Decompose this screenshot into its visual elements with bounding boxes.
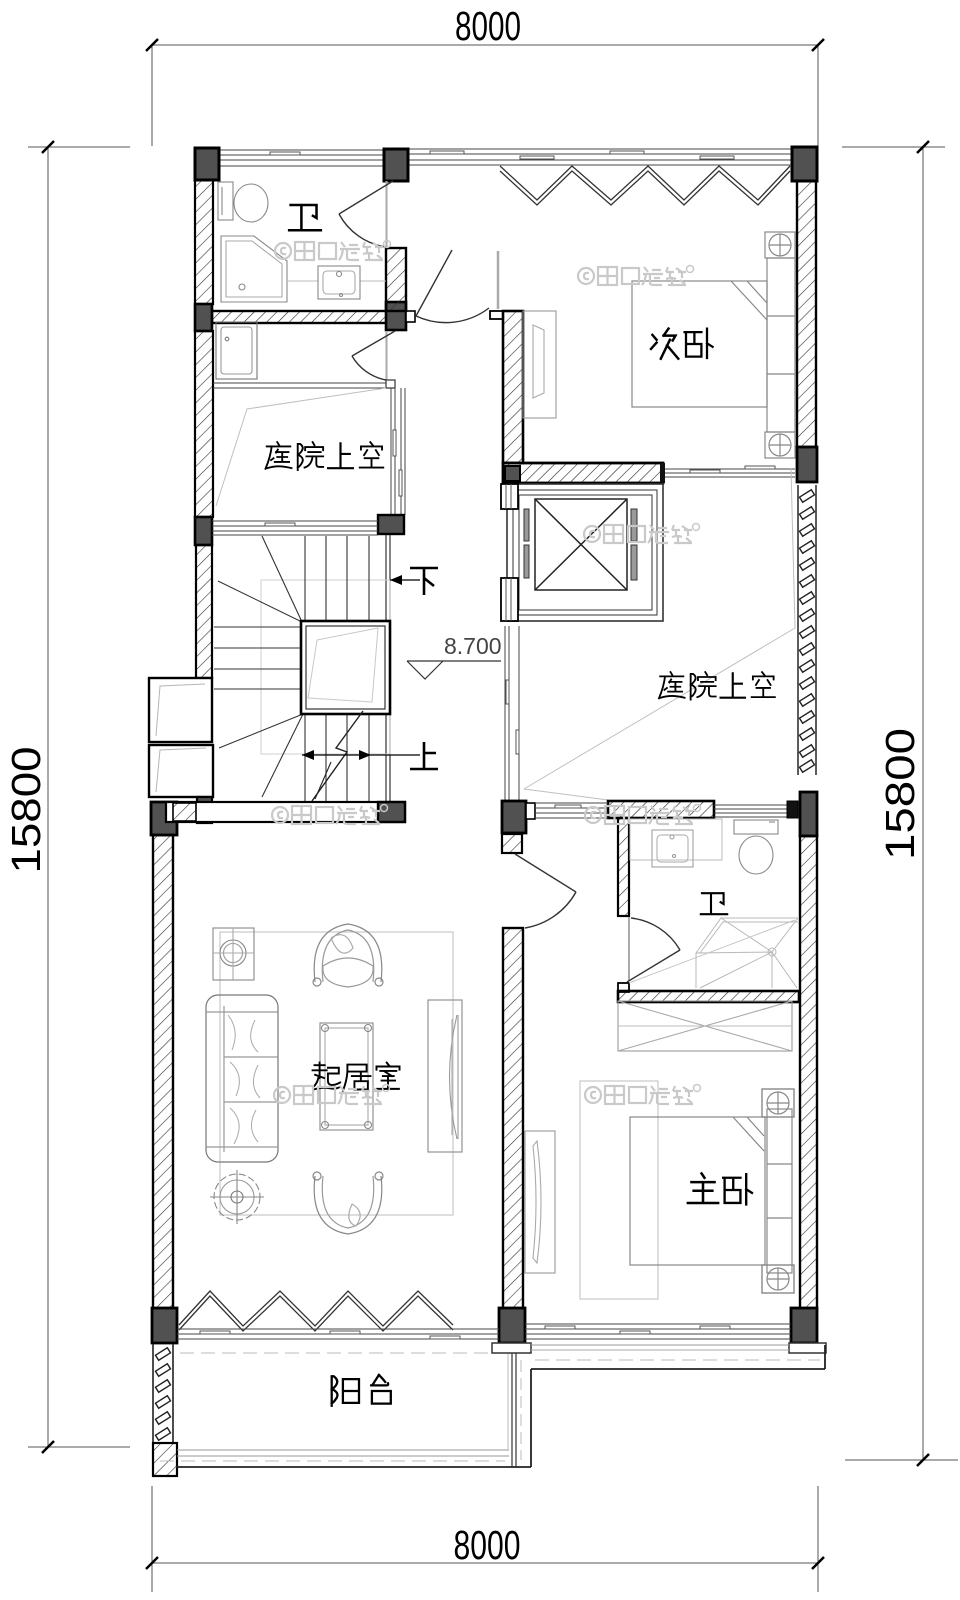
svg-text:8000: 8000 (454, 1522, 521, 1568)
svg-text:8000: 8000 (455, 3, 521, 49)
svg-text:15800: 15800 (3, 747, 49, 874)
svg-text:8.700: 8.700 (444, 633, 502, 659)
svg-text:15800: 15800 (877, 728, 923, 860)
